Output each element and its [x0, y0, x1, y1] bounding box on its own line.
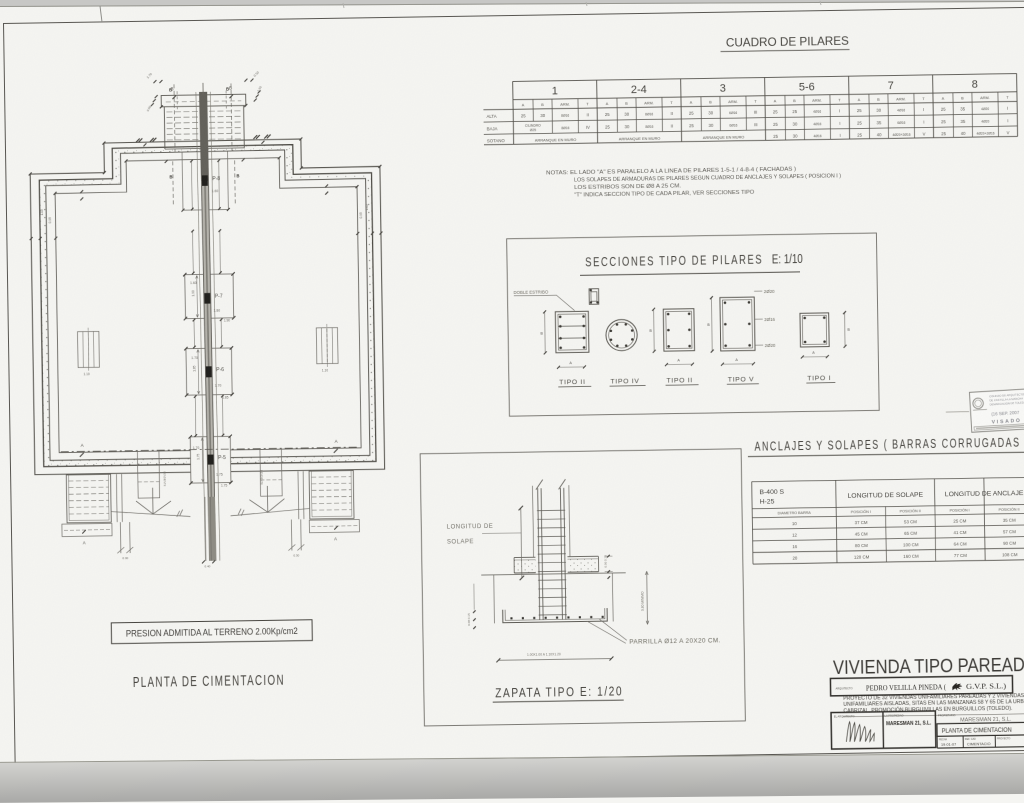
svg-text:LA PROPIEDAD: LA PROPIEDAD: [884, 713, 903, 717]
svg-text:25: 25: [773, 134, 778, 139]
svg-text:25: 25: [941, 107, 946, 112]
svg-text:III: III: [754, 110, 758, 115]
svg-text:G.V.P. S.L.): G.V.P. S.L.): [966, 682, 1007, 692]
svg-text:8Ø16: 8Ø16: [645, 112, 653, 116]
svg-text:LONGITUD DE ANCLAJE: LONGITUD DE ANCLAJE: [945, 490, 1024, 498]
svg-text:II: II: [671, 111, 673, 116]
svg-text:5-6: 5-6: [799, 81, 815, 93]
svg-text:ARQUITECTO: ARQUITECTO: [836, 686, 853, 690]
svg-text:TIPO I: TIPO I: [807, 375, 831, 382]
svg-text:2-4: 2-4: [631, 84, 647, 96]
svg-text:25: 25: [941, 119, 946, 124]
svg-text:PEDRO VELILLA PINEDA (: PEDRO VELILLA PINEDA (: [866, 682, 946, 692]
svg-text:MARESMAN 21, S.L.: MARESMAN 21, S.L.: [886, 721, 932, 728]
svg-text:4Ø20+2Ø16: 4Ø20+2Ø16: [976, 132, 994, 136]
svg-text:II: II: [587, 112, 589, 117]
svg-text:ARM.: ARM.: [980, 96, 990, 100]
svg-text:4Ø16: 4Ø16: [897, 108, 905, 112]
svg-text:I: I: [923, 119, 924, 124]
svg-text:IV: IV: [586, 125, 590, 130]
svg-text:3: 3: [720, 83, 726, 95]
svg-text:8Ø16: 8Ø16: [645, 125, 653, 129]
svg-text:4Ø16: 4Ø16: [814, 134, 822, 138]
svg-text:V: V: [923, 132, 926, 137]
svg-text:ARRANQUE EN MURO: ARRANQUE EN MURO: [703, 135, 745, 141]
svg-text:V: V: [1007, 130, 1010, 135]
svg-text:25: 25: [689, 111, 694, 116]
svg-text:T: T: [586, 102, 589, 106]
svg-text:T: T: [838, 99, 841, 103]
svg-text:4Ø16: 4Ø16: [813, 110, 821, 114]
svg-text:25 CM: 25 CM: [953, 518, 966, 523]
svg-text:PROYECTO: PROYECTO: [997, 737, 1011, 740]
svg-text:H-25: H-25: [760, 498, 775, 505]
svg-text:I: I: [839, 133, 840, 138]
svg-text:25: 25: [941, 131, 946, 136]
svg-text:III: III: [754, 122, 758, 127]
svg-text:B: B: [877, 98, 880, 102]
svg-text:30: 30: [624, 112, 629, 117]
svg-text:35: 35: [960, 119, 965, 124]
svg-text:LONGITUD DE SOLAPE: LONGITUD DE SOLAPE: [848, 492, 924, 500]
svg-text:"T" INDICA SECCION TIPO DE CAD: "T" INDICA SECCION TIPO DE CADA PILAR, V…: [574, 190, 754, 199]
svg-text:100 CM: 100 CM: [903, 542, 919, 547]
svg-text:25: 25: [857, 120, 862, 125]
svg-text:E: 1/10: E: 1/10: [772, 251, 803, 266]
svg-text:19-01-07: 19-01-07: [941, 743, 956, 747]
svg-text:35: 35: [960, 106, 965, 111]
svg-text:I: I: [1007, 118, 1008, 123]
svg-text:41 CM: 41 CM: [954, 530, 967, 535]
svg-text:ARM.: ARM.: [896, 98, 906, 102]
svg-text:I: I: [923, 107, 924, 112]
svg-text:30: 30: [793, 134, 798, 139]
svg-text:6Ø16: 6Ø16: [897, 121, 905, 125]
svg-text:4Ø20: 4Ø20: [981, 119, 989, 123]
svg-text:16: 16: [792, 544, 798, 549]
svg-text:25: 25: [689, 123, 694, 128]
svg-text:PLANTA DE CIMENTACION: PLANTA DE CIMENTACION: [133, 673, 285, 691]
svg-text:35: 35: [876, 120, 881, 125]
svg-text:30: 30: [708, 110, 713, 115]
svg-text:REF. CAD: REF. CAD: [965, 738, 976, 741]
svg-text:A: A: [606, 102, 609, 106]
svg-text:Ø25: Ø25: [530, 128, 536, 132]
svg-text:A: A: [774, 100, 777, 104]
svg-text:POSICIÓN I: POSICIÓN I: [950, 507, 970, 512]
svg-text:77 CM: 77 CM: [954, 553, 967, 558]
svg-text:T: T: [922, 97, 925, 101]
svg-text:II: II: [671, 123, 673, 128]
svg-text:90 CM: 90 CM: [1003, 541, 1016, 546]
svg-text:SOTANO: SOTANO: [487, 138, 506, 143]
svg-text:4Ø20+2Ø16: 4Ø20+2Ø16: [893, 133, 911, 137]
svg-text:TIPO IV: TIPO IV: [610, 378, 639, 385]
svg-text:B-400 S: B-400 S: [759, 489, 784, 496]
svg-text:20: 20: [792, 556, 798, 561]
svg-text:T: T: [670, 101, 673, 105]
svg-text:35 CM: 35 CM: [1003, 518, 1016, 523]
svg-text:4Ø16: 4Ø16: [813, 122, 821, 126]
svg-text:120 CM: 120 CM: [854, 555, 870, 560]
svg-text:I: I: [839, 121, 840, 126]
svg-text:TIPO V: TIPO V: [728, 376, 755, 383]
svg-text:(16 SEP. 2007: (16 SEP. 2007: [991, 410, 1020, 417]
svg-text:25: 25: [521, 113, 526, 118]
svg-text:1: 1: [552, 85, 558, 97]
svg-text:TIPO II: TIPO II: [666, 377, 693, 384]
svg-text:65 CM: 65 CM: [904, 531, 917, 536]
svg-text:SECCIONES TIPO DE PILARES: SECCIONES TIPO DE PILARES: [585, 252, 763, 270]
svg-text:57 CM: 57 CM: [1003, 529, 1016, 534]
svg-text:TIPO II: TIPO II: [559, 379, 586, 386]
svg-text:8: 8: [972, 79, 978, 91]
svg-text:A: A: [858, 98, 861, 102]
svg-text:40: 40: [961, 131, 966, 136]
svg-text:ARM.: ARM.: [812, 99, 822, 103]
svg-text:PROPIETARIO: PROPIETARIO: [938, 713, 956, 717]
svg-text:25: 25: [857, 133, 862, 138]
svg-text:PLANTA DE CIMENTACION: PLANTA DE CIMENTACION: [942, 727, 1012, 735]
svg-text:160 CM: 160 CM: [903, 554, 919, 559]
svg-text:A: A: [690, 101, 693, 105]
svg-text:A: A: [942, 97, 945, 101]
svg-text:12: 12: [792, 533, 798, 538]
svg-text:T: T: [754, 100, 757, 104]
svg-text:30: 30: [625, 124, 630, 129]
svg-text:B: B: [793, 99, 796, 103]
svg-text:25: 25: [857, 108, 862, 113]
svg-text:ALTA: ALTA: [486, 114, 496, 119]
svg-text:30: 30: [540, 113, 545, 118]
svg-text:ARM.: ARM.: [560, 103, 570, 107]
svg-text:25: 25: [792, 109, 797, 114]
svg-text:LOS ESTRIBOS SON DE Ø8 A 25 CM: LOS ESTRIBOS SON DE Ø8 A 25 CM.: [574, 183, 681, 191]
svg-text:ARM.: ARM.: [644, 101, 654, 105]
svg-text:ARRANQUE EN MURO: ARRANQUE EN MURO: [535, 137, 577, 143]
svg-text:ARRANQUE EN MURO: ARRANQUE EN MURO: [619, 136, 661, 142]
svg-text:ARM.: ARM.: [728, 100, 738, 104]
svg-text:CUADRO DE PILARES: CUADRO DE PILARES: [726, 34, 849, 50]
svg-text:25: 25: [605, 124, 610, 129]
svg-text:30: 30: [709, 123, 714, 128]
svg-text:A: A: [522, 104, 525, 108]
svg-text:30: 30: [876, 108, 881, 113]
svg-text:ZAPATA TIPO E: 1/20: ZAPATA TIPO E: 1/20: [495, 683, 623, 700]
svg-text:4Ø20: 4Ø20: [981, 107, 989, 111]
svg-text:8Ø16: 8Ø16: [561, 114, 569, 118]
svg-text:6Ø16: 6Ø16: [729, 111, 737, 115]
svg-text:POSICIÓN I: POSICIÓN I: [851, 509, 871, 514]
svg-text:B: B: [961, 97, 964, 101]
svg-text:25: 25: [773, 109, 778, 114]
svg-text:B: B: [625, 102, 628, 106]
svg-text:DIAMETRO BARRA: DIAMETRO BARRA: [778, 511, 812, 516]
svg-text:I: I: [839, 108, 840, 113]
svg-text:8Ø16: 8Ø16: [561, 126, 569, 130]
svg-text:37 CM: 37 CM: [855, 520, 868, 525]
svg-text:FECHA: FECHA: [939, 738, 948, 741]
svg-text:B: B: [709, 101, 712, 105]
svg-text:25: 25: [773, 122, 778, 127]
svg-text:BAJA: BAJA: [487, 126, 498, 131]
svg-text:80 CM: 80 CM: [855, 543, 868, 548]
svg-text:T: T: [1006, 96, 1009, 100]
svg-text:PRESION ADMITIDA AL TERRENO 2.: PRESION ADMITIDA AL TERRENO 2.00Kp/cm2: [126, 626, 298, 639]
svg-text:B: B: [541, 103, 544, 107]
svg-text:45 CM: 45 CM: [855, 531, 868, 536]
svg-text:25: 25: [605, 112, 610, 117]
svg-text:53 CM: 53 CM: [904, 519, 917, 524]
svg-text:10: 10: [792, 521, 798, 526]
svg-text:I: I: [1007, 106, 1008, 111]
svg-text:POSICIÓN II: POSICIÓN II: [998, 506, 1019, 511]
svg-text:7: 7: [888, 80, 894, 92]
svg-text:CIMENTACIO: CIMENTACIO: [967, 742, 991, 746]
svg-text:EL ARQUITECTO: EL ARQUITECTO: [834, 714, 855, 718]
svg-text:30: 30: [793, 121, 798, 126]
svg-text:POSICIÓN II: POSICIÓN II: [900, 508, 921, 513]
svg-text:40: 40: [877, 132, 882, 137]
svg-text:6Ø16: 6Ø16: [729, 123, 737, 127]
svg-text:64 CM: 64 CM: [954, 542, 967, 547]
svg-text:108 CM: 108 CM: [1002, 552, 1018, 557]
svg-text:ANCLAJES Y SOLAPES ( BARRAS CO: ANCLAJES Y SOLAPES ( BARRAS CORRUGADAS: [754, 435, 1020, 454]
